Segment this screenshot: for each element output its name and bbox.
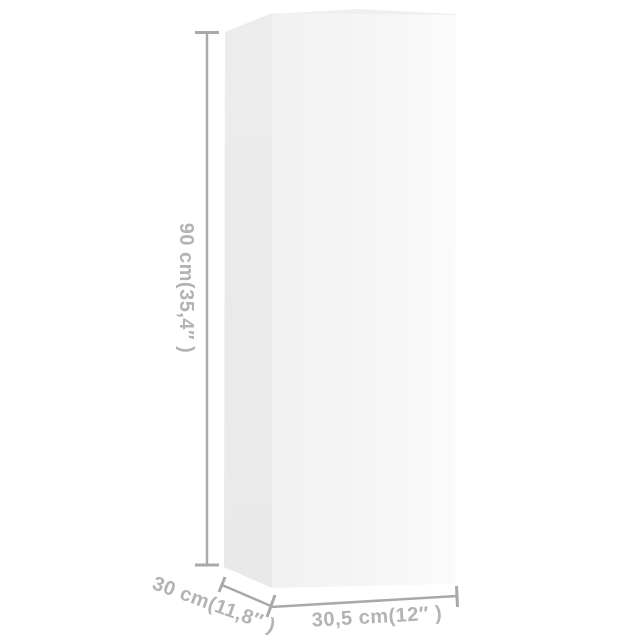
- width-dimension-label: 30,5 cm(12″ ): [311, 602, 443, 631]
- depth-dimension-cap-left: [219, 577, 225, 592]
- width-dimension-cap-right: [457, 586, 458, 607]
- diagram-svg: 90 cm(35,4″ ) 30 cm(11,8″ ) 30,5 cm(12″ …: [0, 0, 640, 640]
- height-dimension-label: 90 cm(35,4″ ): [175, 223, 197, 354]
- box-side-face: [224, 13, 272, 588]
- height-dimension: [195, 33, 219, 566]
- dimension-diagram: 90 cm(35,4″ ) 30 cm(11,8″ ) 30,5 cm(12″ …: [0, 0, 640, 640]
- product-box: [224, 9, 456, 588]
- box-front-face: [272, 13, 456, 588]
